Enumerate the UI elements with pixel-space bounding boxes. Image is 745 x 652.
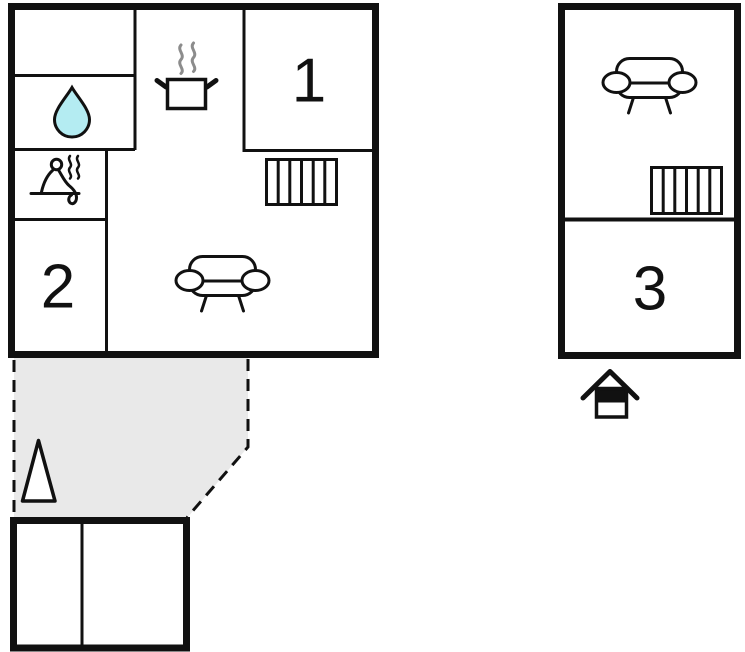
- floor-plan-canvas: 1 2 3: [0, 0, 745, 652]
- house-icon: [583, 372, 637, 418]
- annex-radiator-icon: [652, 168, 722, 214]
- sofa-armrest-right: [242, 271, 269, 291]
- radiator-icon: [267, 160, 337, 205]
- annex-sofa-armrest-right: [669, 73, 696, 93]
- pot-body: [168, 80, 206, 109]
- sauna-person-head: [51, 159, 61, 169]
- sofa-armrest-left: [176, 271, 203, 291]
- room-1-label: 1: [292, 47, 326, 116]
- floor-plan: 1 2 3: [0, 0, 745, 652]
- annex-sofa-armrest-left: [603, 73, 630, 93]
- plan-ink: 1 2 3: [12, 7, 738, 649]
- room-3-label: 3: [633, 255, 667, 324]
- outbuilding-outer-wall: [14, 521, 187, 649]
- room-2-label: 2: [41, 253, 75, 322]
